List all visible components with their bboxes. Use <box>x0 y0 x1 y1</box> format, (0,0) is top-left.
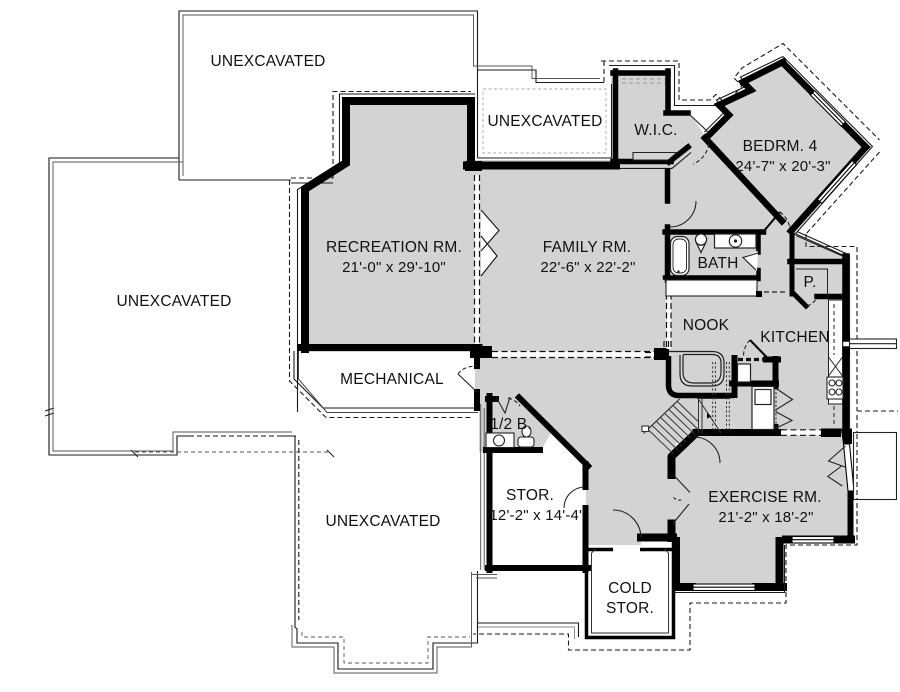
svg-text:FAMILY RM.: FAMILY RM. <box>543 239 631 256</box>
svg-text:UNEXCAVATED: UNEXCAVATED <box>116 293 231 310</box>
svg-text:EXERCISE RM.: EXERCISE RM. <box>708 489 822 506</box>
svg-text:BEDRM. 4: BEDRM. 4 <box>743 138 818 155</box>
svg-text:COLD: COLD <box>608 580 652 597</box>
svg-text:KITCHEN: KITCHEN <box>760 329 829 346</box>
svg-text:12'-2" x 14'-4": 12'-2" x 14'-4" <box>489 507 584 524</box>
svg-text:24'-7" x 20'-3": 24'-7" x 20'-3" <box>735 158 830 175</box>
svg-text:MECHANICAL: MECHANICAL <box>340 371 444 388</box>
svg-text:22'-6" x 22'-2": 22'-6" x 22'-2" <box>540 259 635 276</box>
svg-text:UNEXCAVATED: UNEXCAVATED <box>487 113 602 130</box>
svg-text:P.: P. <box>803 274 816 291</box>
svg-text:21'-2" x 18'-2": 21'-2" x 18'-2" <box>718 509 813 526</box>
svg-text:BATH: BATH <box>698 255 739 272</box>
svg-text:STOR.: STOR. <box>506 487 554 504</box>
svg-text:W.I.C.: W.I.C. <box>634 122 677 139</box>
svg-text:1/2 B.: 1/2 B. <box>490 416 532 433</box>
svg-text:RECREATION RM.: RECREATION RM. <box>326 239 462 256</box>
svg-text:UNEXCAVATED: UNEXCAVATED <box>210 53 325 70</box>
svg-text:UNEXCAVATED: UNEXCAVATED <box>325 513 440 530</box>
svg-text:21'-0" x 29'-10": 21'-0" x 29'-10" <box>342 259 446 276</box>
svg-text:NOOK: NOOK <box>683 317 730 334</box>
svg-text:STOR.: STOR. <box>606 600 654 617</box>
